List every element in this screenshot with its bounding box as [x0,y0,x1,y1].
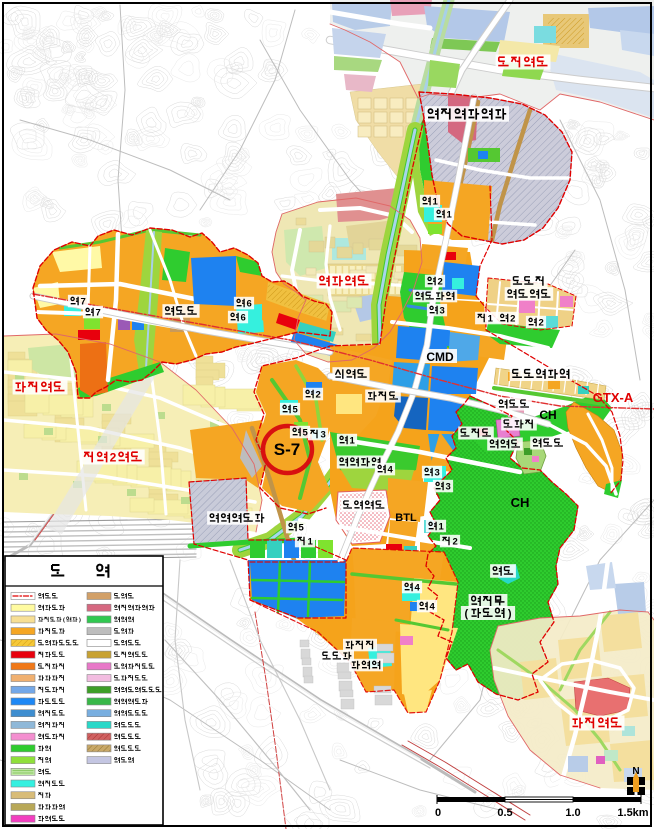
svg-text:5: 5 [302,427,308,438]
svg-text:0: 0 [435,807,441,819]
svg-text:3: 3 [445,481,450,492]
svg-text:2: 2 [110,450,117,464]
svg-text:1: 1 [349,435,355,446]
svg-text:6: 6 [240,312,245,323]
svg-text:BTL: BTL [395,512,417,524]
svg-text:2: 2 [510,313,515,324]
svg-text:7: 7 [80,296,85,307]
svg-text:6: 6 [246,298,251,309]
svg-text:1.5km: 1.5km [617,807,648,819]
svg-text:0.5: 0.5 [497,807,512,819]
svg-text:1: 1 [446,209,452,220]
svg-text:1: 1 [488,313,494,324]
svg-text:4: 4 [429,601,435,612]
svg-text:2: 2 [315,389,320,400]
svg-text:1: 1 [438,521,444,532]
svg-text:CH: CH [511,495,530,510]
svg-text:7: 7 [95,307,100,318]
svg-text:): ) [508,608,512,620]
svg-text:5: 5 [292,404,298,415]
svg-text:CH: CH [539,408,556,422]
svg-text:3: 3 [320,429,325,440]
svg-text:4: 4 [387,464,393,475]
svg-text:5: 5 [298,522,304,533]
svg-text:1: 1 [432,196,438,207]
svg-text:1: 1 [307,536,313,547]
svg-text:S-7: S-7 [274,440,300,459]
svg-text:): ) [79,618,81,624]
svg-text:1.0: 1.0 [565,807,580,819]
svg-text:4: 4 [414,582,420,593]
svg-text:2: 2 [452,536,457,547]
svg-text:3: 3 [434,467,439,478]
svg-text:(: ( [63,618,65,624]
svg-text:3: 3 [439,305,444,316]
svg-text:2: 2 [437,276,442,287]
svg-text:GTX-A: GTX-A [593,390,634,405]
svg-text:(: ( [464,608,468,620]
svg-text:2: 2 [538,317,543,328]
svg-text:CMD: CMD [426,350,454,364]
